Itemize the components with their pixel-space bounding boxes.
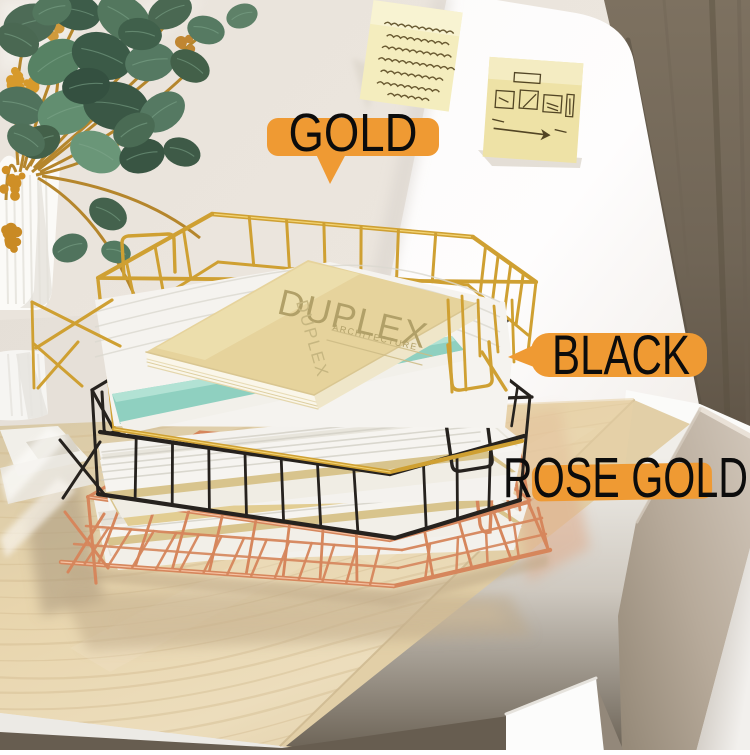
- svg-text:ROSE GOLD: ROSE GOLD: [503, 446, 748, 510]
- svg-text:GOLD: GOLD: [289, 103, 418, 163]
- svg-text:BLACK: BLACK: [552, 323, 690, 386]
